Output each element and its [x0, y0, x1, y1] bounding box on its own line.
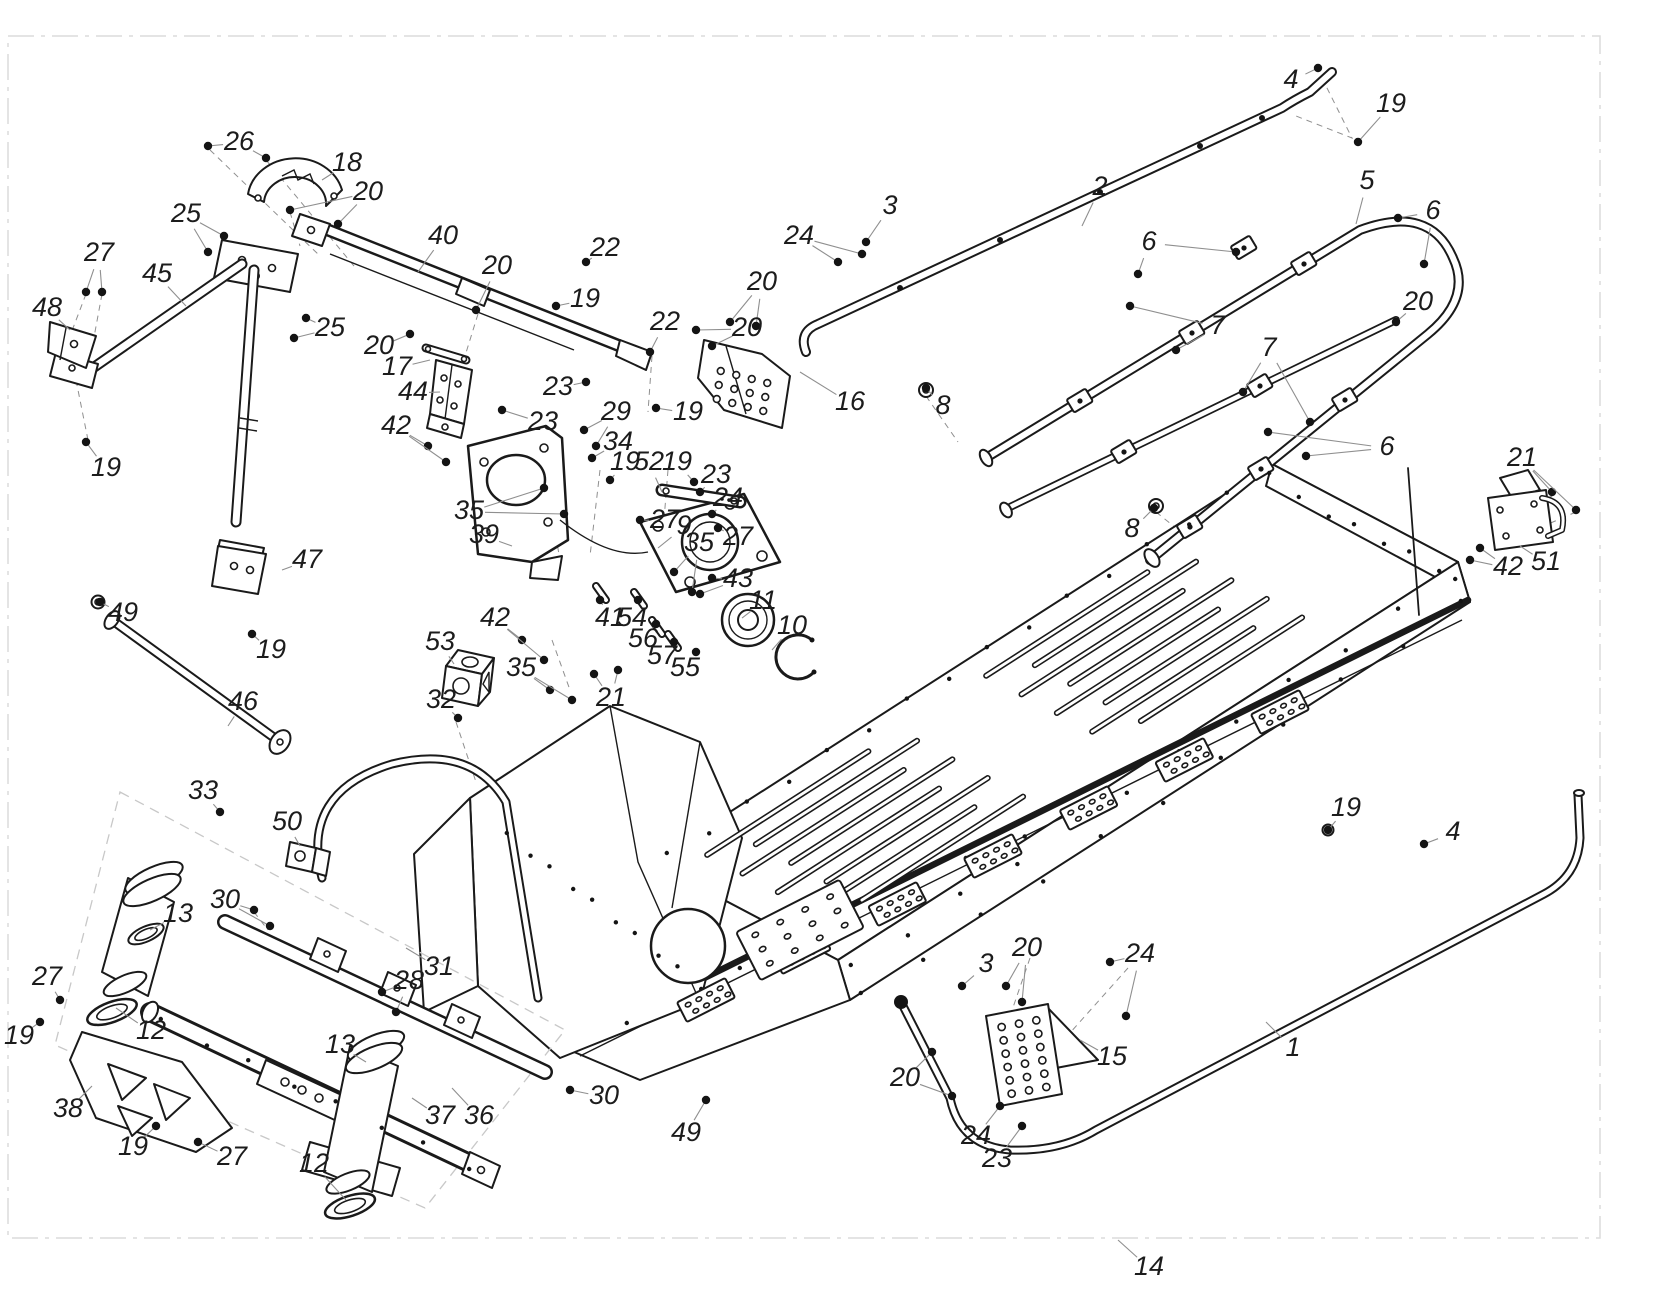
callout-label-13: 13: [163, 898, 193, 928]
leader-line: [1356, 197, 1363, 224]
callout-label-44: 44: [398, 376, 428, 406]
fastener-dot: [858, 250, 866, 258]
bracket-47: [212, 546, 266, 594]
fastener-dot: [958, 982, 966, 990]
callout-label-42: 42: [1493, 551, 1523, 581]
callout-label-55: 55: [670, 652, 701, 682]
fastener-dot: [266, 922, 274, 930]
fastener-dot: [1466, 556, 1474, 564]
bulkhead-bore: [651, 909, 725, 983]
fastener-dot: [216, 808, 224, 816]
leader-line: [228, 716, 234, 726]
leader-line: [413, 360, 430, 364]
callout-label-19: 19: [118, 1131, 148, 1161]
fastener-dot: [560, 510, 568, 518]
fastener-dot: [204, 142, 212, 150]
fastener-dot: [36, 1018, 44, 1026]
callout-label-8: 8: [935, 390, 950, 420]
callout-label-40: 40: [428, 220, 458, 250]
fastener-dot: [1264, 428, 1272, 436]
fastener-dot: [1394, 214, 1402, 222]
callout-label-24: 24: [712, 482, 743, 512]
fastener-dot: [96, 598, 104, 606]
leader-line: [1082, 202, 1093, 226]
callout-label-20: 20: [731, 312, 762, 342]
callout-label-27: 27: [722, 521, 754, 551]
callout-label-47: 47: [292, 544, 323, 574]
front-bulkhead: [286, 706, 742, 1058]
fastener-dot: [582, 258, 590, 266]
fastener-dot: [442, 458, 450, 466]
leader-line: [1130, 306, 1202, 323]
leader-line: [1306, 450, 1371, 456]
fastener-dot: [204, 248, 212, 256]
saddle-plate-18: [248, 158, 342, 206]
fastener-dot: [1150, 504, 1158, 512]
leader-line: [1165, 245, 1236, 252]
callout-label-42: 42: [381, 410, 411, 440]
callout-label-19: 19: [256, 634, 286, 664]
callout-label-16: 16: [835, 386, 866, 416]
callout-label-29: 29: [600, 396, 631, 426]
leader-line: [800, 372, 836, 395]
callout-label-2: 2: [1091, 171, 1107, 201]
callout-label-53: 53: [425, 626, 455, 656]
fastener-dot: [1302, 452, 1310, 460]
callout-label-3: 3: [978, 948, 993, 978]
callout-label-28: 28: [393, 965, 424, 995]
fastener-dot: [948, 1092, 956, 1100]
diagram-page: 4192618202525324640622272045201948202272…: [0, 0, 1673, 1311]
callout-label-45: 45: [142, 258, 173, 288]
callout-label-27: 27: [216, 1141, 248, 1171]
callout-label-33: 33: [188, 775, 218, 805]
fastener-dot: [646, 348, 654, 356]
fastener-dot: [194, 1138, 202, 1146]
fastener-dot: [590, 670, 598, 678]
fastener-dot: [690, 478, 698, 486]
fastener-dot: [250, 906, 258, 914]
fastener-dot: [152, 1122, 160, 1130]
callout-label-19: 19: [91, 452, 121, 482]
leader-line: [812, 246, 838, 262]
fastener-dot: [1572, 506, 1580, 514]
fastener-dot: [286, 206, 294, 214]
callout-label-7: 7: [1261, 332, 1277, 362]
fastener-dot: [392, 1008, 400, 1016]
fastener-dot: [472, 306, 480, 314]
callout-label-49: 49: [108, 597, 138, 627]
fastener-dot: [540, 656, 548, 664]
callout-label-5: 5: [1359, 165, 1375, 195]
callout-label-23: 23: [527, 406, 558, 436]
fastener-dot: [56, 996, 64, 1004]
fastener-dot: [1018, 1122, 1026, 1130]
callout-label-12: 12: [299, 1148, 329, 1178]
fastener-dot: [1122, 1012, 1130, 1020]
callout-label-20: 20: [746, 266, 777, 296]
leader-line: [290, 196, 352, 210]
fastener-dot: [708, 342, 716, 350]
fastener-dot: [1232, 248, 1240, 256]
callout-label-22: 22: [649, 306, 680, 336]
callout-label-42: 42: [480, 602, 510, 632]
callout-label-22: 22: [589, 232, 620, 262]
fastener-dot: [1420, 260, 1428, 268]
leader-line: [282, 566, 292, 570]
callout-label-19: 19: [662, 446, 692, 476]
callout-label-26: 26: [223, 126, 255, 156]
fastener-dot: [1476, 544, 1484, 552]
fastener-dot: [540, 484, 548, 492]
callout-label-20: 20: [1011, 932, 1042, 962]
callout-label-37: 37: [425, 1100, 456, 1130]
callout-label-25: 25: [314, 312, 346, 342]
fastener-dot: [696, 590, 704, 598]
fastener-dot: [588, 454, 596, 462]
callout-label-18: 18: [332, 147, 362, 177]
callout-label-35: 35: [684, 527, 715, 557]
fastener-dot: [636, 516, 644, 524]
callout-label-21: 21: [595, 682, 626, 712]
fastener-dot: [1324, 826, 1332, 834]
exploded-parts-diagram: 4192618202525324640622272045201948202272…: [0, 0, 1673, 1311]
leader-line: [409, 436, 446, 462]
fastener-dot: [692, 326, 700, 334]
leader-line: [1022, 965, 1025, 1002]
callout-label-27: 27: [83, 237, 115, 267]
fastener-dot: [606, 476, 614, 484]
callout-label-46: 46: [228, 686, 259, 716]
fastener-dot: [454, 714, 462, 722]
fastener-dot: [862, 238, 870, 246]
callout-label-30: 30: [589, 1080, 619, 1110]
fastener-dot: [582, 378, 590, 386]
fastener-dot: [1392, 318, 1400, 326]
fastener-dot: [708, 574, 716, 582]
callout-label-10: 10: [777, 610, 807, 640]
callout-label-4: 4: [1283, 64, 1298, 94]
callout-label-6: 6: [1379, 431, 1395, 461]
fastener-dot: [378, 988, 386, 996]
callout-label-48: 48: [32, 292, 62, 322]
fastener-dot: [714, 524, 722, 532]
fastener-dot: [82, 288, 90, 296]
callout-label-3: 3: [882, 190, 897, 220]
callout-label-19: 19: [673, 396, 703, 426]
callout-label-24: 24: [783, 220, 814, 250]
callout-label-23: 23: [981, 1143, 1012, 1173]
callout-label-13: 13: [325, 1029, 355, 1059]
fastener-dot: [1002, 982, 1010, 990]
callout-label-36: 36: [464, 1100, 495, 1130]
callout-label-7: 7: [1210, 310, 1226, 340]
fastener-dot: [922, 384, 930, 392]
callout-label-32: 32: [426, 684, 456, 714]
fastener-dot: [1126, 302, 1134, 310]
fastener-dot: [688, 588, 696, 596]
callout-label-19: 19: [570, 283, 600, 313]
callout-label-23: 23: [542, 371, 573, 401]
leader-line: [1126, 971, 1136, 1016]
callout-label-14: 14: [1134, 1251, 1164, 1281]
fastener-dot: [248, 630, 256, 638]
fastener-dot: [834, 258, 842, 266]
fastener-dot: [406, 330, 414, 338]
callout-label-1: 1: [1285, 1032, 1300, 1062]
callout-label-25: 25: [170, 198, 202, 228]
fastener-dot: [1306, 418, 1314, 426]
callout-label-50: 50: [272, 806, 302, 836]
fastener-dot: [1548, 488, 1556, 496]
fastener-dot: [592, 442, 600, 450]
bracket-16: [698, 340, 790, 428]
fastener-dot: [1106, 958, 1114, 966]
fastener-dot: [568, 696, 576, 704]
fastener-dot: [1134, 270, 1142, 278]
fastener-dot: [518, 636, 526, 644]
callout-label-35: 35: [506, 652, 537, 682]
fastener-dot: [928, 1048, 936, 1056]
rail-clip: [1230, 235, 1257, 259]
callout-label-15: 15: [1097, 1041, 1128, 1071]
fastener-dot: [1354, 138, 1362, 146]
callout-label-6: 6: [1141, 226, 1157, 256]
leader-line: [1268, 432, 1371, 446]
fastener-dot: [614, 666, 622, 674]
fastener-dot: [98, 288, 106, 296]
leader-line: [1358, 117, 1380, 142]
callout-label-20: 20: [889, 1062, 920, 1092]
fastener-dot: [580, 426, 588, 434]
callout-label-52: 52: [634, 446, 664, 476]
fastener-dot: [262, 154, 270, 162]
fastener-dot: [670, 568, 678, 576]
callout-label-8: 8: [1124, 513, 1139, 543]
callout-label-20: 20: [1402, 286, 1433, 316]
fastener-dot: [290, 334, 298, 342]
fastener-dot: [652, 404, 660, 412]
fastener-dot: [1172, 346, 1180, 354]
callout-label-27: 27: [31, 961, 63, 991]
callout-label-19: 19: [1331, 792, 1361, 822]
callout-label-51: 51: [1531, 546, 1561, 576]
callout-label-19: 19: [4, 1020, 34, 1050]
leader-line: [535, 677, 572, 700]
callout-label-19: 19: [1376, 88, 1406, 118]
callout-label-49: 49: [671, 1117, 701, 1147]
callout-label-20: 20: [352, 176, 383, 206]
callout-label-11: 11: [749, 585, 777, 615]
fastener-dot: [1239, 388, 1247, 396]
callout-label-4: 4: [1445, 816, 1460, 846]
fastener-dot: [566, 1086, 574, 1094]
fastener-dot: [498, 406, 506, 414]
fastener-dot: [996, 1102, 1004, 1110]
fastener-dot: [220, 232, 228, 240]
callout-label-12: 12: [136, 1015, 166, 1045]
fastener-dot: [1420, 840, 1428, 848]
fastener-dot: [1018, 998, 1026, 1006]
callout-label-21: 21: [1506, 442, 1537, 472]
bracket-51: [1488, 470, 1563, 550]
callout-label-6: 6: [1425, 195, 1441, 225]
fastener-dot: [552, 302, 560, 310]
fastener-dot: [702, 1096, 710, 1104]
callout-label-38: 38: [53, 1093, 83, 1123]
callout-label-39: 39: [469, 519, 499, 549]
callout-label-30: 30: [210, 884, 240, 914]
fastener-dot: [334, 220, 342, 228]
callout-label-20: 20: [481, 250, 512, 280]
fastener-dot: [1314, 64, 1322, 72]
fastener-dot: [302, 314, 310, 322]
circlip-10: [776, 635, 814, 679]
callout-label-24: 24: [1124, 938, 1155, 968]
leader-line: [696, 329, 731, 330]
callout-label-31: 31: [424, 951, 454, 981]
fastener-dot: [82, 438, 90, 446]
